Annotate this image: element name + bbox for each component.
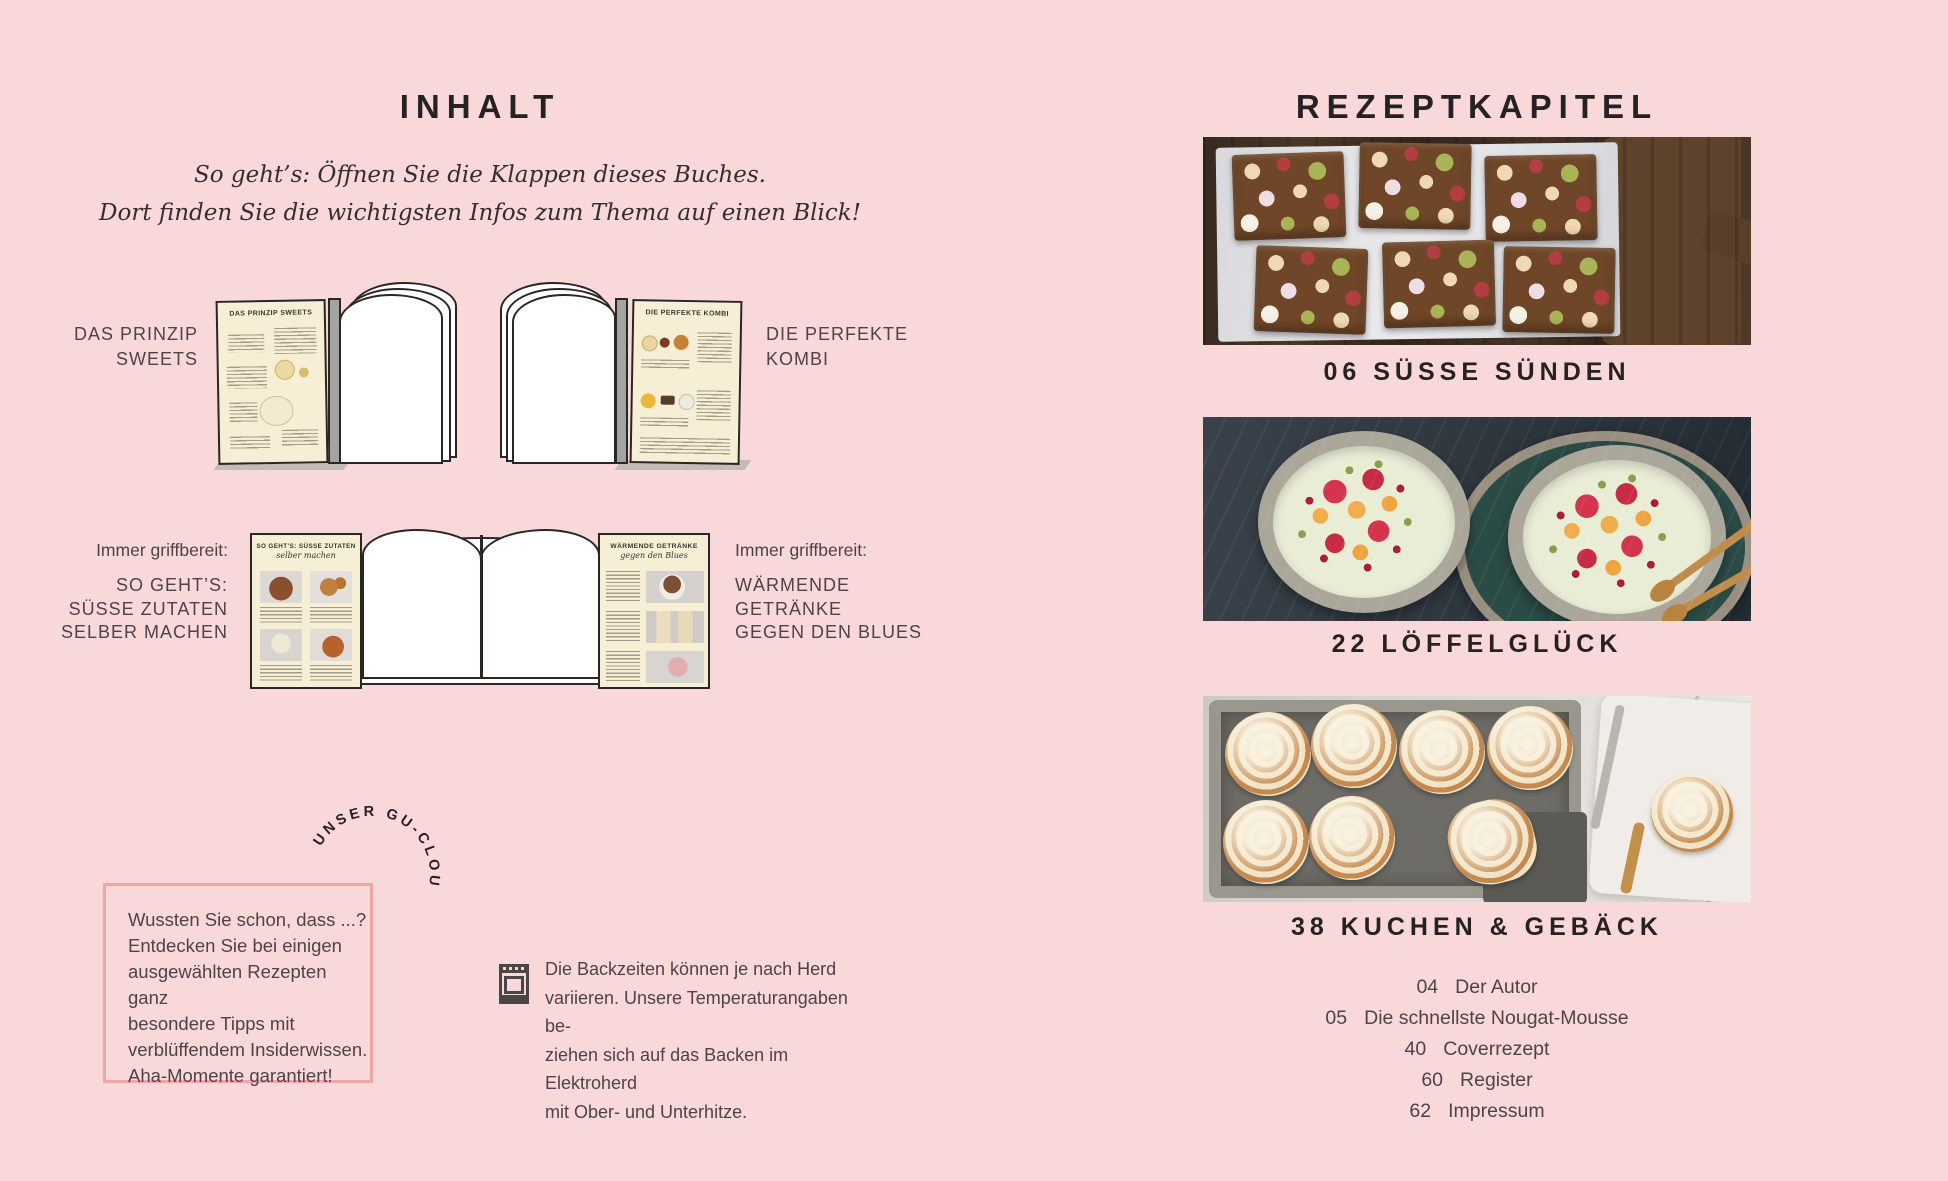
flap-micro-text bbox=[229, 402, 257, 422]
book-page bbox=[339, 294, 443, 464]
flap-micro-text bbox=[228, 334, 264, 353]
toc-page-number: 04 bbox=[1416, 976, 1438, 998]
flap-photo bbox=[646, 651, 704, 683]
label-line: KOMBI bbox=[766, 347, 976, 372]
flap-subtitle: gegen den Blues bbox=[600, 551, 708, 560]
label-caps-block: SO GEHT’S: SÜSSE ZUTATEN SELBER MACHEN bbox=[10, 574, 228, 645]
flap-illustration bbox=[642, 335, 658, 351]
flap-micro-text bbox=[282, 429, 318, 446]
flap-illustration bbox=[641, 393, 656, 408]
chocolate-bar bbox=[1502, 246, 1615, 334]
wooden-board bbox=[1601, 137, 1741, 345]
chapter-caption-suesse-suenden: 06 SÜSSE SÜNDEN bbox=[1203, 358, 1751, 387]
page-title-inhalt: INHALT bbox=[0, 88, 960, 126]
flap-subtitle: selber machen bbox=[252, 551, 360, 560]
tip-box: Wussten Sie schon, dass ...? Entdecken S… bbox=[103, 883, 373, 1083]
flap-micro-text bbox=[641, 359, 689, 370]
intro-line-1: So geht’s: Öffnen Sie die Klappen dieses… bbox=[40, 156, 920, 194]
label-line: SWEETS bbox=[30, 347, 198, 372]
toc-label: Die schnellste Nougat-Mousse bbox=[1364, 1007, 1628, 1029]
chocolate-bar bbox=[1232, 151, 1347, 241]
flap-suesse-zutaten: SO GEHT’S: SÜSSE ZUTATEN selber machen bbox=[250, 533, 362, 689]
chocolate-bar bbox=[1484, 154, 1597, 242]
flap-photo bbox=[646, 611, 704, 643]
flap-illustration bbox=[674, 335, 689, 350]
flap-illustration bbox=[259, 396, 294, 427]
page-title-rezeptkapitel: REZEPTKAPITEL bbox=[1203, 88, 1751, 126]
label-line: SÜSSE ZUTATEN bbox=[10, 598, 228, 622]
book-spine bbox=[480, 535, 483, 677]
wooden-spoon bbox=[1678, 543, 1751, 615]
flap-micro-text bbox=[230, 436, 270, 451]
label-das-prinzip-sweets: DAS PRINZIP SWEETS bbox=[30, 322, 198, 372]
flap-das-prinzip-sweets: DAS PRINZIP SWEETS bbox=[216, 299, 329, 465]
flap-micro-text bbox=[227, 366, 267, 389]
cinnamon-roll bbox=[1223, 800, 1309, 884]
flap-micro-text bbox=[274, 327, 316, 354]
flap-title: DAS PRINZIP SWEETS bbox=[218, 309, 324, 318]
flap-micro-text bbox=[640, 437, 730, 455]
label-line: SELBER MACHEN bbox=[10, 621, 228, 645]
chocolate-bar bbox=[1382, 240, 1496, 329]
cinnamon-roll bbox=[1225, 712, 1311, 796]
oven-note-line: mit Ober- und Unterhitze. bbox=[545, 1098, 875, 1127]
toc-page-number: 62 bbox=[1409, 1100, 1431, 1122]
wooden-board-handle bbox=[1699, 208, 1751, 276]
flap-title: SO GEHT’S: SÜSSE ZUTATEN bbox=[252, 543, 360, 550]
oven-note-line: ziehen sich auf das Backen im Elektroher… bbox=[545, 1041, 875, 1098]
flap-micro-text bbox=[640, 417, 688, 428]
toc-entry-der-autor: 04Der Autor bbox=[1203, 972, 1751, 1003]
flap-micro-text bbox=[260, 665, 302, 681]
flap-illustration bbox=[299, 367, 309, 377]
tip-line: Entdecken Sie bei einigen bbox=[128, 933, 370, 959]
intro-line-2: Dort finden Sie die wichtigsten Infos zu… bbox=[40, 194, 920, 232]
flap-photo bbox=[260, 629, 302, 661]
toc-entry-impressum: 62Impressum bbox=[1203, 1096, 1751, 1127]
wooden-spoon bbox=[1665, 508, 1751, 591]
toc-label: Der Autor bbox=[1455, 976, 1537, 998]
flap-photo bbox=[260, 571, 302, 603]
toc-entry-coverrezept: 40Coverrezept bbox=[1203, 1034, 1751, 1065]
flap-illustration bbox=[660, 338, 670, 348]
toc-entry-nougat-mousse: 05Die schnellste Nougat-Mousse bbox=[1203, 1003, 1751, 1034]
label-line: DAS PRINZIP bbox=[30, 322, 198, 347]
toc-page-number: 05 bbox=[1325, 1007, 1347, 1029]
toc-label: Register bbox=[1460, 1069, 1533, 1091]
cookbook-contents-spread: INHALT So geht’s: Öffnen Sie die Klappen… bbox=[0, 0, 1948, 1181]
gu-clou-badge-text: UNSER GU-CLOU bbox=[311, 804, 443, 890]
dessert-bowl bbox=[1258, 431, 1470, 613]
oven-note-text: Die Backzeiten können je nach Herd varii… bbox=[545, 955, 875, 1126]
flap-illustration bbox=[661, 396, 675, 405]
book-page bbox=[480, 529, 600, 679]
dessert-bowl bbox=[1508, 445, 1726, 621]
flap-illustration bbox=[275, 360, 295, 380]
book-diagram-perfekte-kombi: DIE PERFEKTE KOMBI bbox=[498, 282, 753, 477]
oven-note-line: variieren. Unsere Temperaturangaben be- bbox=[545, 984, 875, 1041]
label-intro: Immer griffbereit: bbox=[735, 538, 965, 563]
flap-photo bbox=[646, 571, 704, 603]
flap-waermende-getraenke: WÄRMENDE GETRÄNKE gegen den Blues bbox=[598, 533, 710, 689]
flap-micro-text bbox=[310, 665, 352, 681]
toc-page-number: 40 bbox=[1405, 1038, 1427, 1060]
rocky-road-chocolate-bars-photo bbox=[1203, 137, 1751, 345]
chocolate-bar bbox=[1254, 245, 1369, 335]
flap-die-perfekte-kombi: DIE PERFEKTE KOMBI bbox=[630, 299, 743, 465]
book-page bbox=[362, 529, 482, 679]
label-line: GEGEN DEN BLUES bbox=[735, 621, 965, 645]
flap-photo bbox=[310, 629, 352, 661]
label-die-perfekte-kombi: DIE PERFEKTE KOMBI bbox=[766, 322, 976, 372]
tip-line: Aha-Momente garantiert! bbox=[128, 1063, 370, 1089]
book-page bbox=[512, 294, 616, 464]
flap-micro-text bbox=[606, 571, 640, 601]
oven-icon bbox=[497, 960, 531, 1006]
intro-text: So geht’s: Öffnen Sie die Klappen dieses… bbox=[40, 156, 920, 232]
flap-micro-text bbox=[310, 607, 352, 623]
tip-line: besondere Tipps mit bbox=[128, 1011, 370, 1037]
toc-entry-register: 60Register bbox=[1203, 1065, 1751, 1096]
book-diagram-double-flap: SO GEHT’S: SÜSSE ZUTATEN selber machen W… bbox=[250, 513, 712, 695]
cinnamon-roll bbox=[1311, 704, 1397, 788]
flap-illustration bbox=[679, 394, 695, 410]
page-list: 04Der Autor 05Die schnellste Nougat-Mous… bbox=[1203, 972, 1751, 1127]
flap-micro-text bbox=[696, 390, 731, 421]
label-line: SO GEHT’S: bbox=[10, 574, 228, 598]
teal-plate bbox=[1455, 431, 1751, 621]
label-so-gehts-zutaten: Immer griffbereit: SO GEHT’S: SÜSSE ZUTA… bbox=[10, 538, 228, 645]
chapter-caption-loeffelglueck: 22 LÖFFELGLÜCK bbox=[1203, 630, 1751, 659]
tip-line: verblüffendem Insiderwissen. bbox=[128, 1037, 370, 1063]
tip-line: Wussten Sie schon, dass ...? bbox=[128, 907, 370, 933]
chapter-caption-kuchen-gebaeck: 38 KUCHEN & GEBÄCK bbox=[1203, 913, 1751, 942]
oven-note-line: Die Backzeiten können je nach Herd bbox=[545, 955, 875, 984]
cinnamon-roll bbox=[1309, 796, 1395, 880]
label-waermende-getraenke: Immer griffbereit: WÄRMENDE GETRÄNKE GEG… bbox=[735, 538, 965, 645]
flap-title: DIE PERFEKTE KOMBI bbox=[634, 309, 740, 318]
flap-micro-text bbox=[697, 332, 732, 363]
toc-label: Impressum bbox=[1448, 1100, 1544, 1122]
label-line: GETRÄNKE bbox=[735, 598, 965, 622]
flap-micro-text bbox=[260, 607, 302, 623]
label-intro: Immer griffbereit: bbox=[10, 538, 228, 563]
label-caps-block: WÄRMENDE GETRÄNKE GEGEN DEN BLUES bbox=[735, 574, 965, 645]
tip-line: ausgewählten Rezepten ganz bbox=[128, 959, 370, 1011]
cinnamon-roll bbox=[1399, 710, 1485, 794]
label-line: WÄRMENDE bbox=[735, 574, 965, 598]
label-line: DIE PERFEKTE bbox=[766, 322, 976, 347]
cinnamon-roll-on-board bbox=[1651, 774, 1733, 852]
cinnamon-rolls-in-pan-photo bbox=[1203, 696, 1751, 902]
cinnamon-roll bbox=[1487, 706, 1573, 790]
book-spine bbox=[615, 298, 628, 464]
flap-title: WÄRMENDE GETRÄNKE bbox=[600, 543, 708, 550]
flap-micro-text bbox=[606, 651, 640, 681]
chocolate-bar bbox=[1358, 142, 1471, 230]
flap-micro-text bbox=[606, 611, 640, 641]
dessert-bowls-with-fruit-photo bbox=[1203, 417, 1751, 621]
flap-photo bbox=[310, 571, 352, 603]
book-diagram-prinzip-sweets: DAS PRINZIP SWEETS bbox=[215, 282, 470, 477]
book-spine bbox=[328, 298, 341, 464]
toc-page-number: 60 bbox=[1421, 1069, 1443, 1091]
toc-label: Coverrezept bbox=[1443, 1038, 1549, 1060]
